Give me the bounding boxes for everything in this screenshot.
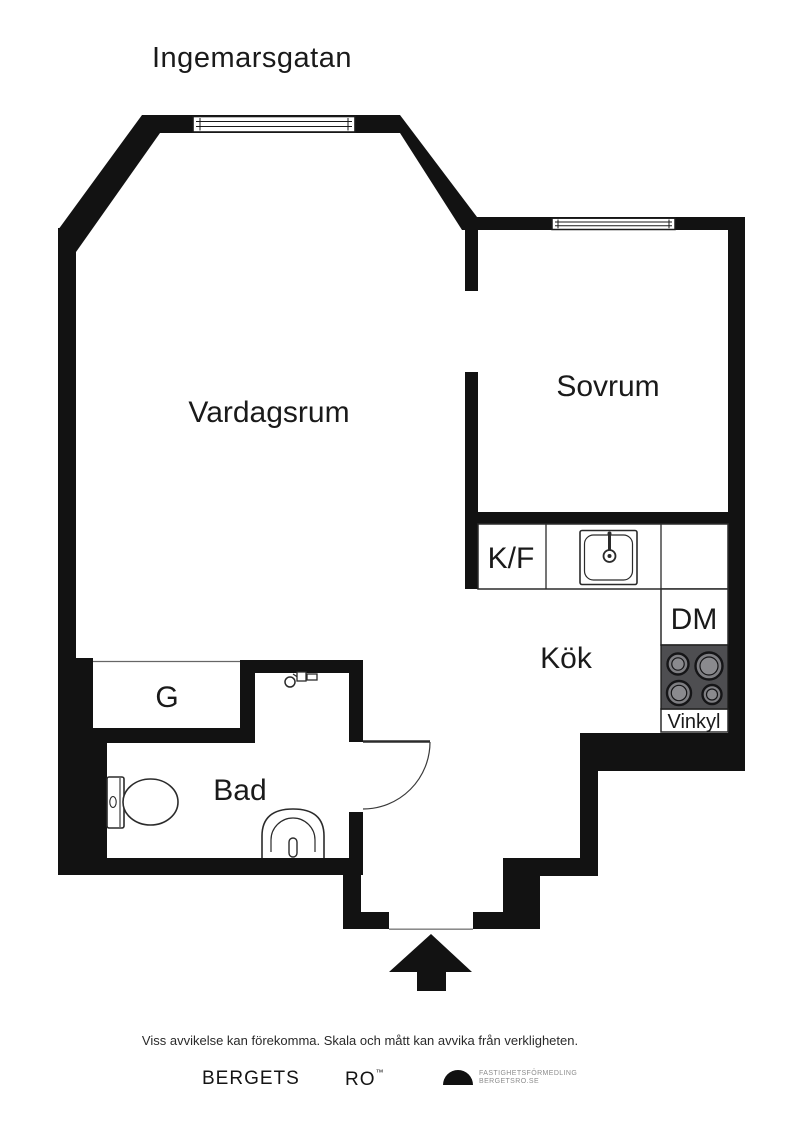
wall-g-left-notch — [76, 658, 93, 743]
disclaimer-text: Viss avvikelse kan förekomma. Skala och … — [0, 1033, 720, 1048]
brand-wordmark-bergets: BERGETS — [202, 1068, 300, 1090]
label-vinkyl: Vinkyl — [668, 711, 721, 733]
label-sovrum: Sovrum — [556, 370, 659, 403]
wall-divider-lower — [465, 372, 478, 589]
label-garderob: G — [155, 681, 178, 714]
label-bad: Bad — [213, 774, 266, 807]
wall-chamfer-right — [400, 115, 477, 230]
wall-bad-east-upper — [349, 660, 363, 742]
agency-line2: BERGETSRO.SE — [479, 1078, 577, 1086]
floorplan-svg: Vardagsrum Sovrum K/F Kök DM Vinkyl G Ba… — [0, 0, 800, 1131]
toilet-icon — [107, 777, 178, 828]
trademark-mark: ™ — [376, 1068, 384, 1077]
label-vardagsrum: Vardagsrum — [188, 396, 349, 429]
label-kok: Kök — [540, 642, 593, 675]
wall-g-bottom — [93, 728, 255, 743]
wall-vardagsrum-bottom — [240, 660, 363, 673]
wall-sovrum-bottom — [465, 512, 728, 524]
kitchen-sink-icon — [580, 531, 637, 585]
brand-ro-text: RO — [345, 1069, 376, 1090]
wall-divider-upper — [465, 217, 478, 291]
wall-entry-left-jog — [343, 875, 361, 929]
agency-text: FASTIGHETSFÖRMEDLING BERGETSRO.SE — [479, 1068, 577, 1086]
entrance-arrow-icon — [389, 934, 472, 991]
stove-icon — [661, 645, 728, 709]
dome-logo-icon — [443, 1070, 473, 1085]
window-vardagsrum — [193, 117, 355, 133]
brand-wordmark-ro: RO™ — [345, 1068, 384, 1091]
label-kf: K/F — [488, 542, 535, 575]
wall-kitchen-bottom-block — [580, 733, 745, 771]
wall-bad-left — [58, 743, 107, 875]
wall-right — [728, 217, 745, 771]
agency-line1: FASTIGHETSFÖRMEDLING — [479, 1070, 577, 1078]
wall-bad-bottom — [58, 858, 360, 875]
agency-logo: FASTIGHETSFÖRMEDLING BERGETSRO.SE — [443, 1068, 577, 1086]
bad-door — [363, 742, 430, 810]
window-sovrum — [552, 218, 675, 229]
door-swing-arc — [363, 742, 430, 809]
shower-mixer-icon — [285, 672, 317, 687]
wall-entry-left-foot — [361, 912, 389, 929]
label-dm: DM — [671, 603, 718, 636]
washbasin-icon — [262, 809, 324, 858]
